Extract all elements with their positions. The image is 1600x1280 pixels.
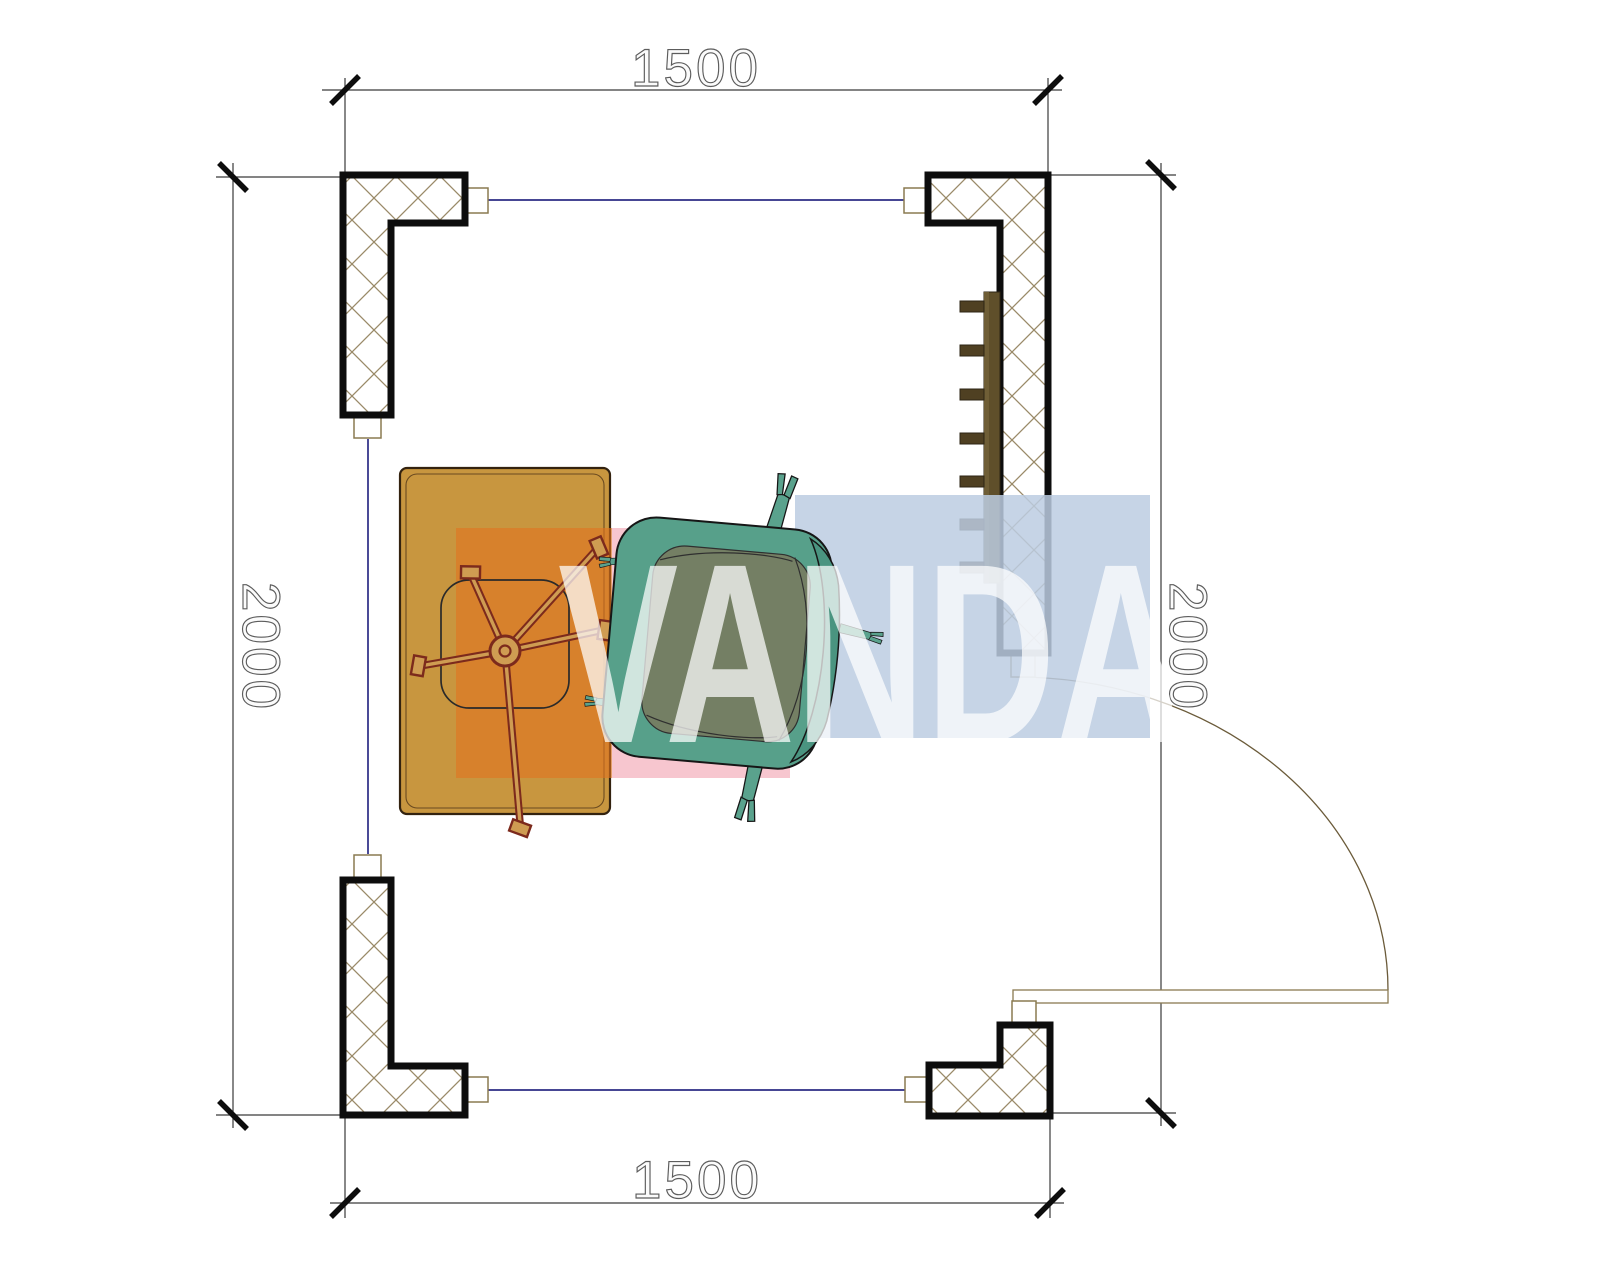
dimension-label-bottom: 1500 — [632, 1151, 762, 1210]
column-top-left — [343, 175, 465, 415]
dimension-label-top: 1500 — [631, 39, 761, 98]
door-leaf — [1013, 990, 1388, 1003]
floor-plan-drawing: 1500 1500 2000 2000 — [0, 0, 1600, 1280]
column-bottom-right — [929, 1025, 1050, 1116]
floor-plan-page: 1500 1500 2000 2000 — [0, 0, 1600, 1280]
watermark-text: VANDA — [558, 511, 1186, 797]
dimension-label-left: 2000 — [231, 582, 290, 712]
column-bottom-left — [343, 880, 465, 1115]
